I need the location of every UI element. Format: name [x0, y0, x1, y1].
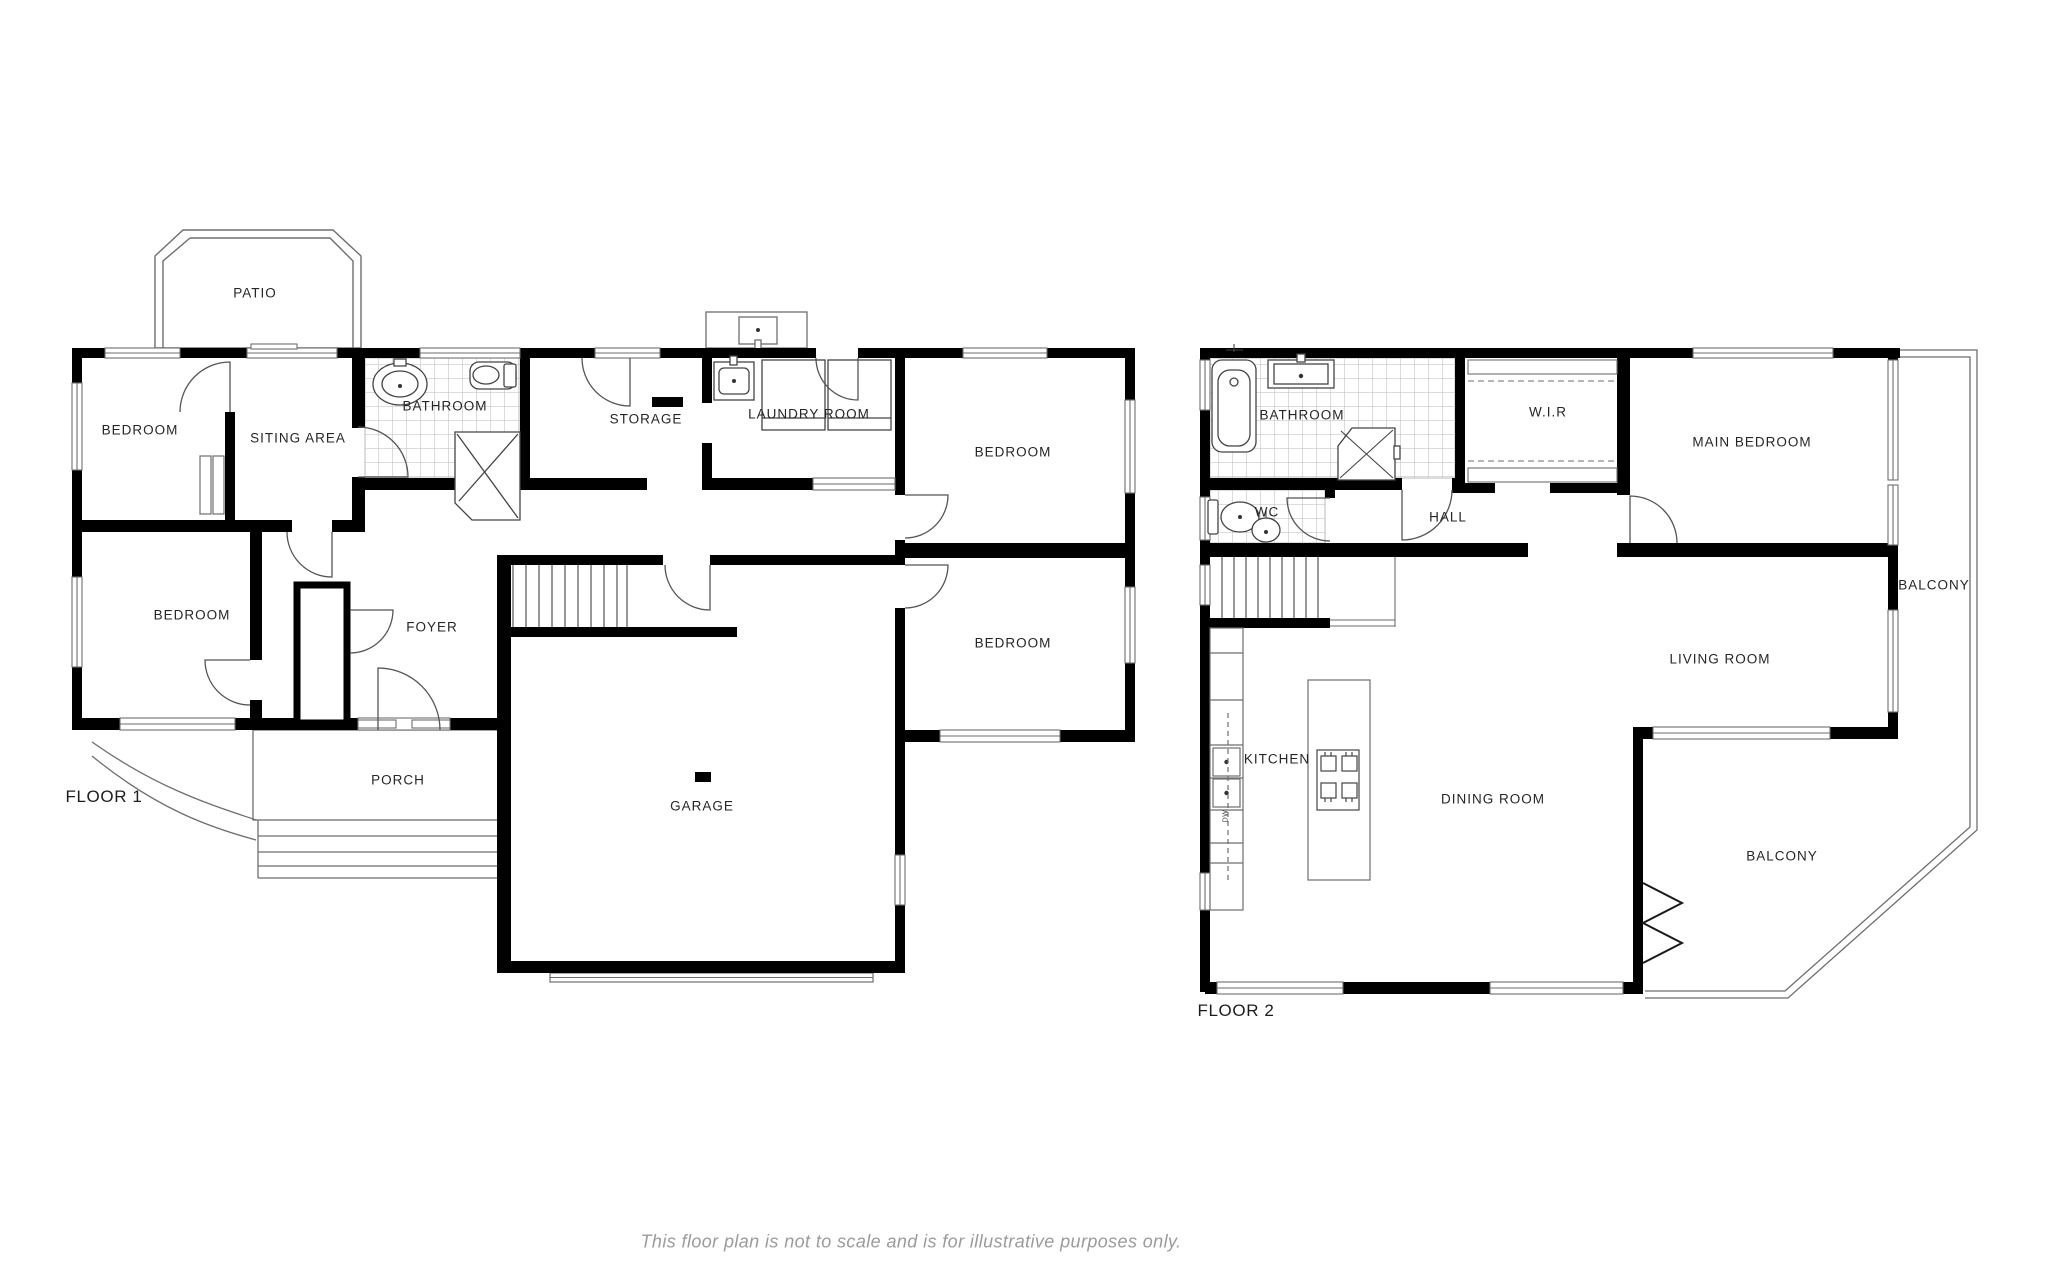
- floor2-title: FLOOR 2: [1198, 1001, 1275, 1021]
- floor2-zigzag-symbol: [1643, 883, 1682, 963]
- room-label-laundry-room: LAUNDRY ROOM: [748, 407, 870, 422]
- room-label-bedroom-right: BEDROOM: [975, 636, 1052, 651]
- floor2-door-arcs: [1287, 490, 1677, 543]
- room-label-bedroom-top-left: BEDROOM: [102, 423, 179, 438]
- room-label-wc: WC: [1255, 505, 1280, 520]
- room-label-siting-area: SITING AREA: [250, 431, 346, 446]
- dishwasher-label: DW: [1223, 810, 1230, 823]
- room-label-bedroom-top-right: BEDROOM: [975, 445, 1052, 460]
- room-label-main-bedroom: MAIN BEDROOM: [1692, 435, 1811, 450]
- floor1-closets: [200, 456, 347, 723]
- floor1-stairs: [513, 565, 627, 627]
- room-label-hall: HALL: [1429, 510, 1467, 525]
- room-label-foyer: FOYER: [406, 620, 458, 635]
- disclaimer-caption: This floor plan is not to scale and is f…: [641, 1232, 1182, 1253]
- room-label-wir: W.I.R: [1529, 405, 1567, 420]
- room-label-balcony-right: BALCONY: [1898, 578, 1970, 593]
- floor2-wir-shelves: [1468, 360, 1617, 482]
- room-label-bathroom-f1: BATHROOM: [403, 399, 488, 414]
- room-label-porch: PORCH: [371, 773, 425, 788]
- room-label-patio: PATIO: [233, 286, 277, 301]
- room-label-bedroom-left: BEDROOM: [154, 608, 231, 623]
- floor1-utility-sink: [706, 312, 807, 352]
- floor2-kitchen: [1210, 628, 1370, 910]
- room-label-kitchen: KITCHEN: [1244, 752, 1310, 767]
- room-label-garage: GARAGE: [670, 799, 734, 814]
- floorplan-page: PATIO BEDROOM SITING AREA BATHROOM STORA…: [0, 0, 2048, 1279]
- room-label-living-room: LIVING ROOM: [1669, 652, 1770, 667]
- room-label-storage: STORAGE: [610, 412, 683, 427]
- room-label-bathroom-f2: BATHROOM: [1260, 408, 1345, 423]
- room-label-dining-room: DINING ROOM: [1441, 792, 1545, 807]
- room-label-balcony-bottom: BALCONY: [1746, 849, 1818, 864]
- floor1-porch: [92, 730, 508, 878]
- floor1-title: FLOOR 1: [66, 787, 143, 807]
- floor2-stairs: [1222, 557, 1395, 627]
